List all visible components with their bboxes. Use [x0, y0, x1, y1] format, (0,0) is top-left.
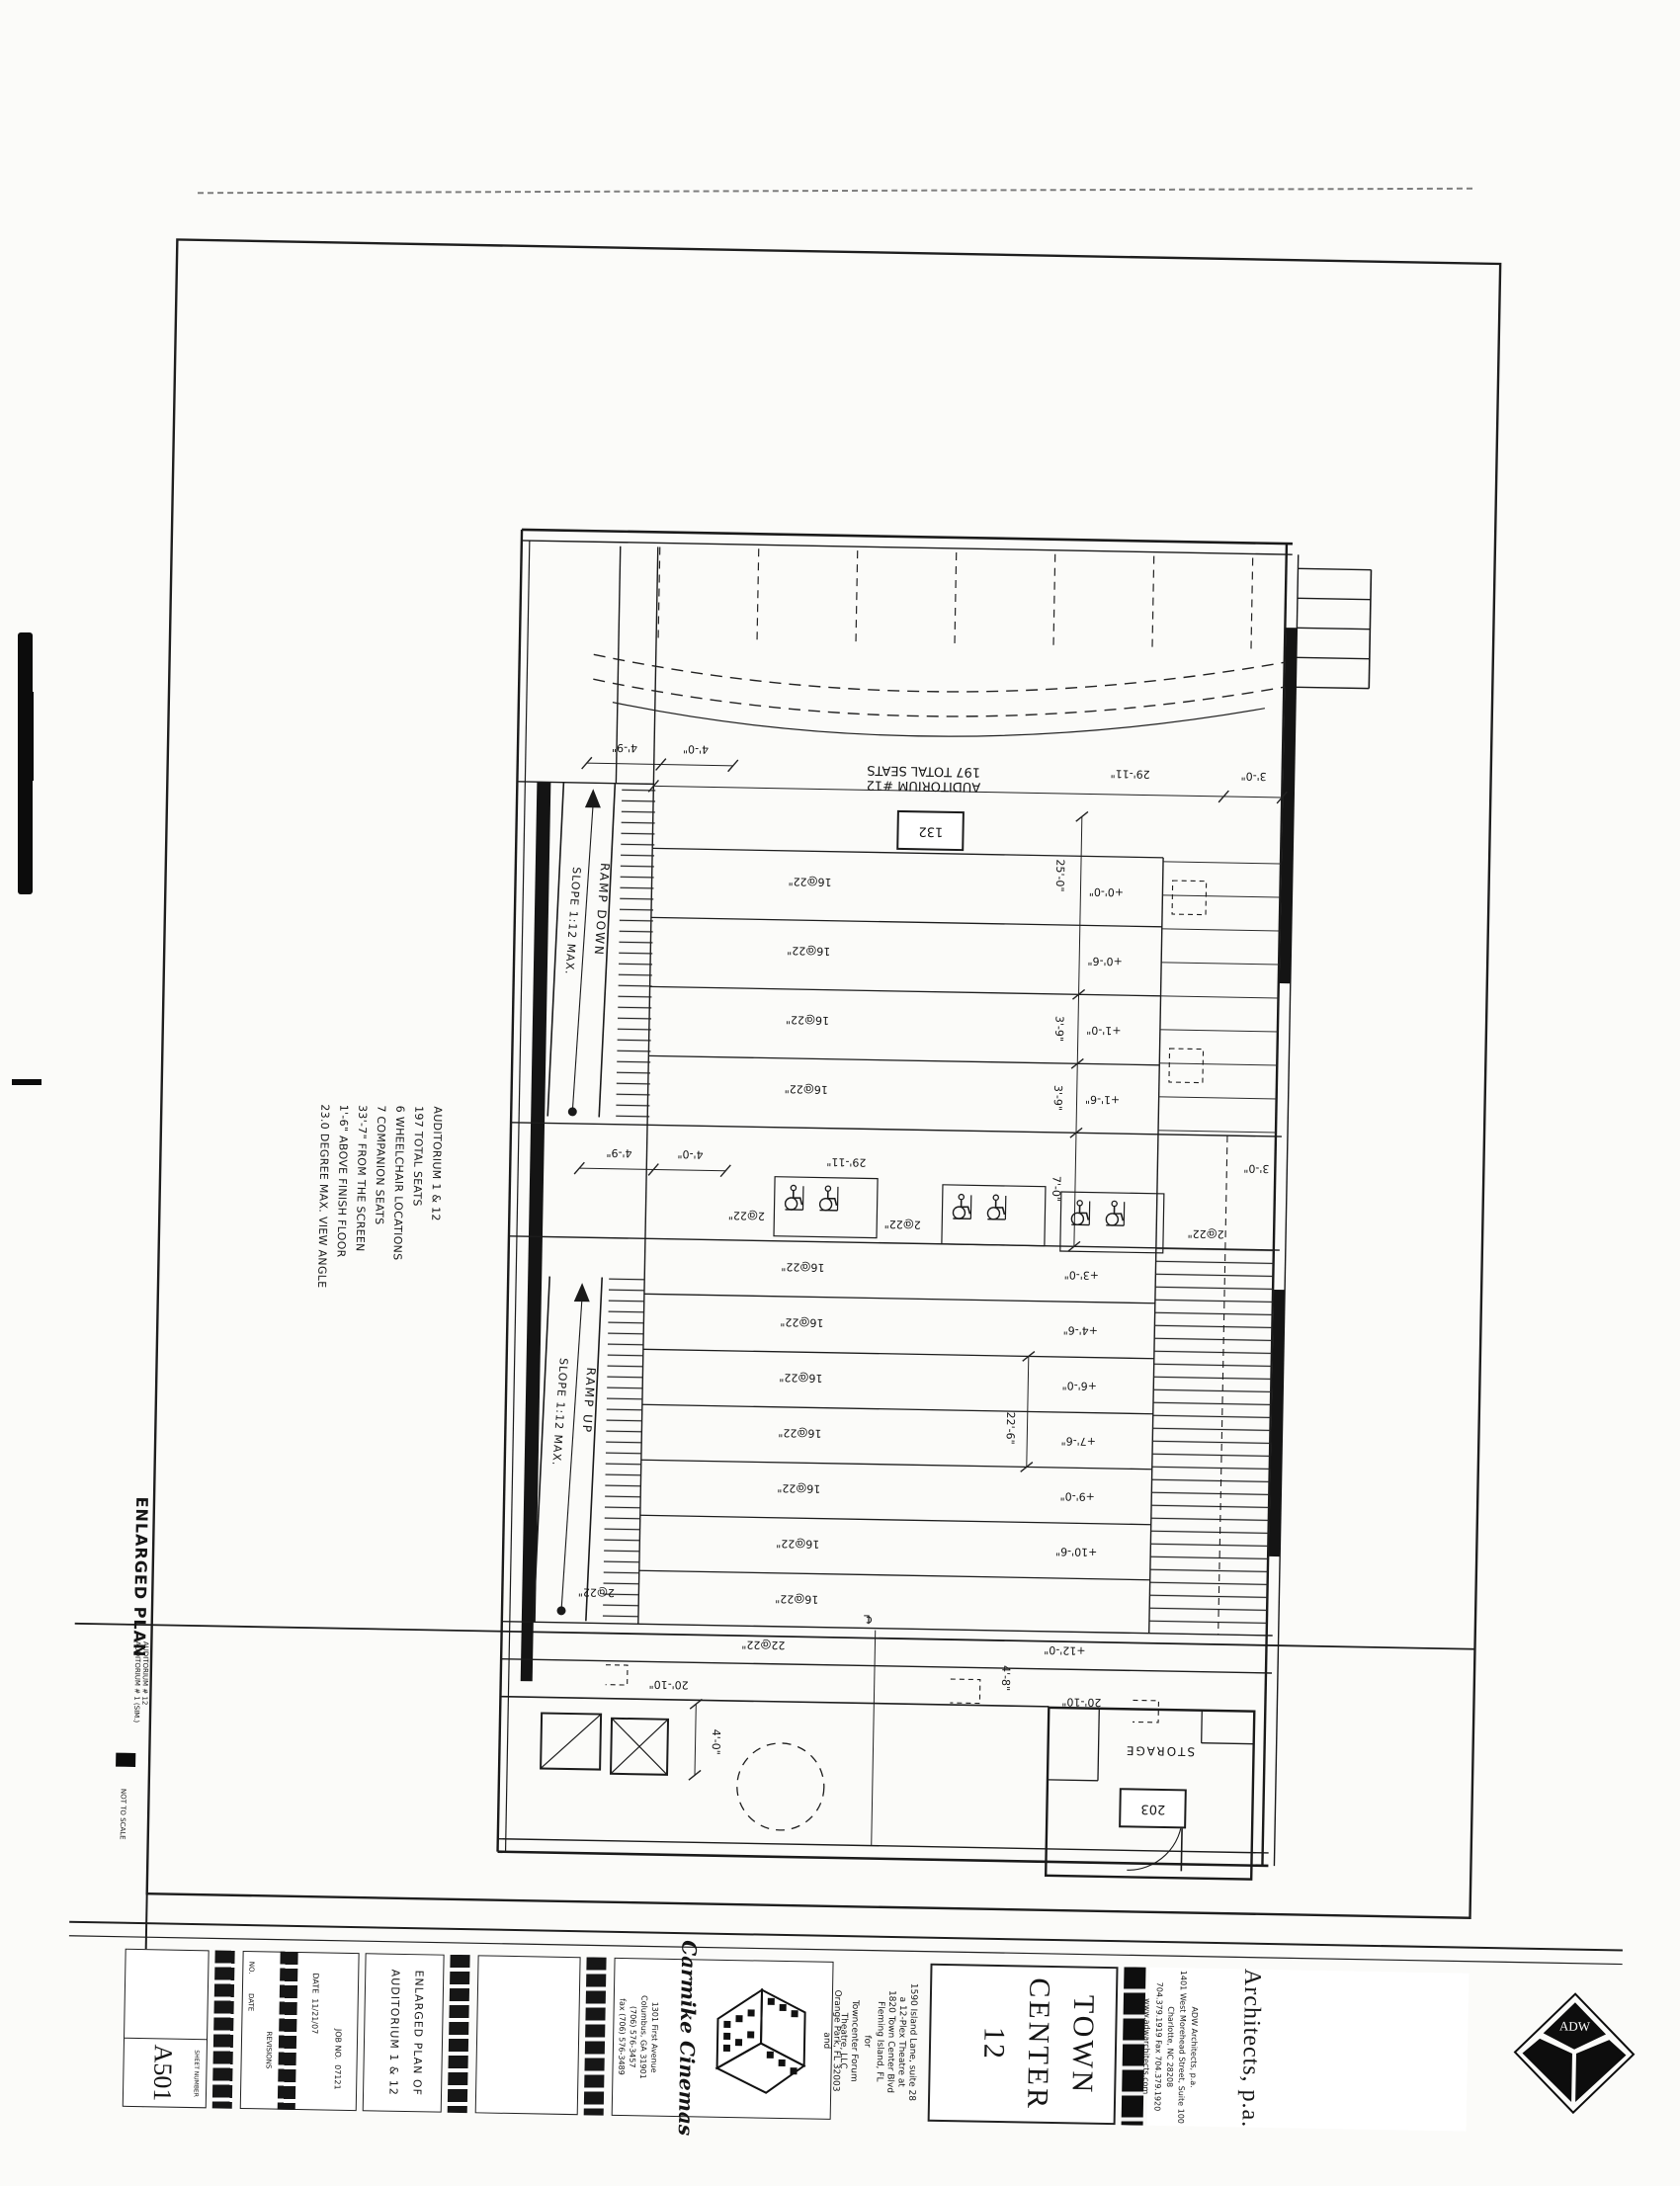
storage-label: STORAGE — [1125, 1742, 1195, 1757]
architect-website: www.adwarchitects.com — [1141, 1998, 1152, 2094]
dim-label: 3'-9" — [1050, 1085, 1063, 1111]
wheelchair-seat-icon — [953, 1194, 970, 1219]
carmike-address: 1301 First Avenue — [649, 2002, 660, 2073]
adw-logo: ADW — [1509, 1987, 1639, 2118]
drawing-subtitle: AUDITORIUM # 12 AUDITORIUM # 1 (SIM.) — [132, 1641, 150, 1724]
up-arrow-icon — [574, 1283, 590, 1302]
project-name-line: 12 — [976, 2027, 1011, 2061]
elevation-label: +10'-6" — [1055, 1545, 1097, 1557]
project-name-line: CENTER — [1020, 1977, 1056, 2111]
seat-rows-upper — [638, 848, 1163, 1633]
drawing-title: ENLARGED PLAN — [129, 1496, 150, 1657]
film-strip-graphic — [709, 1981, 819, 2102]
architect-address: Charlotte, NC 28208 — [1165, 2006, 1176, 2087]
elevation-label: +6'-0" — [1062, 1379, 1098, 1391]
separator-hatch — [448, 1955, 470, 2113]
client-line: 1590 Island Lane, suite 28 — [906, 1983, 919, 2101]
bottom-corridor — [498, 1663, 1159, 1837]
speaker-bracket — [606, 1665, 628, 1685]
sheet-title-cell — [363, 1953, 445, 2112]
scan-artifact-top-line — [198, 188, 1472, 195]
carmike-phone: (706) 576-3457 — [628, 2006, 637, 2068]
dim-label: 20'-10" — [649, 1677, 689, 1690]
dim-label: 4'-9" — [612, 740, 637, 753]
ramp-start-dot — [556, 1606, 565, 1615]
scale-mark — [116, 1753, 135, 1767]
row-count-label: 16@22" — [778, 1425, 821, 1438]
separator-hatch — [584, 1957, 607, 2115]
architect-name: Architects, p.a. — [1235, 1969, 1266, 2129]
centerline-icon: ℄ — [864, 1612, 872, 1626]
wheelchair-seat-icon — [987, 1195, 1005, 1219]
dim-label: 4'-0" — [683, 742, 709, 755]
dim-label: 25'-0" — [1052, 859, 1065, 891]
row-count-label: 16@22" — [775, 1591, 818, 1604]
row-count-label: 16@22" — [788, 875, 831, 887]
dim-label: 22'-6" — [1003, 1411, 1016, 1444]
revisions-header: REVISIONS — [264, 2031, 273, 2068]
dim-label: 4'-0" — [709, 1729, 721, 1755]
storage-tag: 203 — [1119, 1788, 1187, 1828]
wheelchair-seat-icon — [786, 1185, 803, 1210]
carmike-fax: fax (706) 576-3489 — [617, 1998, 628, 2075]
ramp-start-dot — [568, 1107, 577, 1116]
date-label: DATE 11/21/07 — [310, 1973, 320, 2034]
row-count-label: 2@22" — [1187, 1226, 1223, 1239]
client-line: Towncenter Forum — [848, 2000, 860, 2082]
carmike-address: Columbus, GA 31901 — [638, 1995, 649, 2079]
architect-address: ADW Architects, p.a. — [1189, 2006, 1200, 2087]
dim-label: 3'-0" — [1243, 1161, 1269, 1174]
screen-curve — [592, 546, 1287, 742]
dim-label: 4'-9" — [606, 1145, 631, 1158]
sheet-number: A501 — [147, 2044, 178, 2101]
row-count-label: 16@22" — [787, 944, 830, 957]
row-count-label: 2@22" — [884, 1217, 921, 1229]
elevation-label: +12'-0" — [1044, 1642, 1085, 1655]
dim-label: 20'-10" — [1061, 1695, 1101, 1708]
speaker-bracket — [1133, 1700, 1158, 1722]
ramp-up — [534, 1276, 602, 1621]
scan-artifact-streak-2 — [30, 692, 34, 781]
dim-label: 4'-0" — [677, 1147, 703, 1160]
project-line: a 12-Plex Theatre at — [895, 1996, 907, 2086]
sheet-title-line: AUDITORIUM 1 & 12 — [386, 1970, 401, 2096]
dim-label: 29'-11" — [826, 1154, 866, 1167]
job-number: JOB NO. 07121 — [333, 2029, 343, 2090]
row-count-label: 16@22" — [780, 1315, 823, 1328]
project-for: for — [862, 2035, 873, 2048]
sheet-title-line: ENLARGED PLAN OF — [410, 1970, 425, 2096]
sheet-number-label: SHEET NUMBER — [192, 2050, 200, 2097]
elevation-label: +0'-6" — [1087, 954, 1123, 967]
drawing-sheet: AUDITORIUM #12 197 TOTAL SEATS 132 RAMP … — [47, 220, 1664, 2186]
mid-cross-aisle — [509, 1123, 1282, 1255]
carmike-script-logo: Carmike Cinemas — [674, 1940, 701, 2136]
sheet-border — [66, 238, 1653, 2134]
row-count-label: 16@22" — [776, 1536, 819, 1549]
up-arrow-icon — [585, 789, 601, 807]
row-count-label: 16@22" — [781, 1260, 824, 1273]
revision-no-label: NO. — [247, 1962, 255, 1975]
elevation-label: +1'-0" — [1086, 1023, 1122, 1036]
row-count-label: 16@22" — [786, 1013, 829, 1026]
scale-note: NOT TO SCALE — [119, 1789, 127, 1840]
dim-label: 3'-0" — [1240, 769, 1266, 782]
row-count-label: 2@22" — [728, 1209, 765, 1221]
project-line: 1820 Town Center Blvd — [884, 1990, 896, 2093]
elevation-label: +0'-0" — [1089, 884, 1125, 897]
elevation-label: +3'-0" — [1064, 1268, 1100, 1281]
dim-label: 7'-0" — [1049, 1176, 1061, 1202]
row-count-label: 16@22" — [785, 1082, 828, 1095]
row-count-label: 16@22" — [777, 1480, 820, 1493]
project-name-line: TOWN — [1064, 1995, 1100, 2096]
svg-text:ADW: ADW — [1559, 2018, 1591, 2034]
wheelchair-seat-icon — [1106, 1201, 1124, 1225]
client-line: Orange Park, FL 32003 — [830, 1989, 842, 2091]
elevation-label: +1'-6" — [1085, 1092, 1121, 1105]
dim-label: 3'-9" — [1051, 1016, 1064, 1042]
dim-label: 4'-8" — [998, 1665, 1011, 1691]
separator-hatch — [212, 1950, 235, 2108]
blank-cell — [475, 1955, 581, 2115]
plan-notes: AUDITORIUM 1 & 12 197 TOTAL SEATS 6 WHEE… — [303, 1104, 447, 1403]
elevation-label: +9'-0" — [1059, 1489, 1095, 1502]
row-count-label: 22@22" — [741, 1638, 785, 1650]
project-line: Fleming Island, FL — [874, 2001, 885, 2082]
elevation-label: +7'-6" — [1061, 1434, 1097, 1447]
plan-linework — [47, 220, 1664, 2186]
stamp-area — [125, 1950, 209, 2041]
dim-label: 29'-11" — [1111, 767, 1150, 780]
wheelchair-seat-icon — [819, 1186, 837, 1211]
scan-artifact-tick — [12, 1079, 42, 1085]
room-tag: 132 — [896, 810, 965, 851]
row-count-label: 2@22" — [578, 1585, 615, 1598]
column-circle — [736, 1742, 825, 1831]
auditorium-label: AUDITORIUM #12 197 TOTAL SEATS — [866, 761, 980, 793]
row-count-label: 16@22" — [779, 1370, 822, 1383]
elevation-label: +4'-6" — [1063, 1323, 1099, 1336]
revision-date-label: DATE — [247, 1993, 255, 2011]
speaker-bracket — [950, 1679, 979, 1704]
separator-hatch — [278, 1952, 298, 2110]
